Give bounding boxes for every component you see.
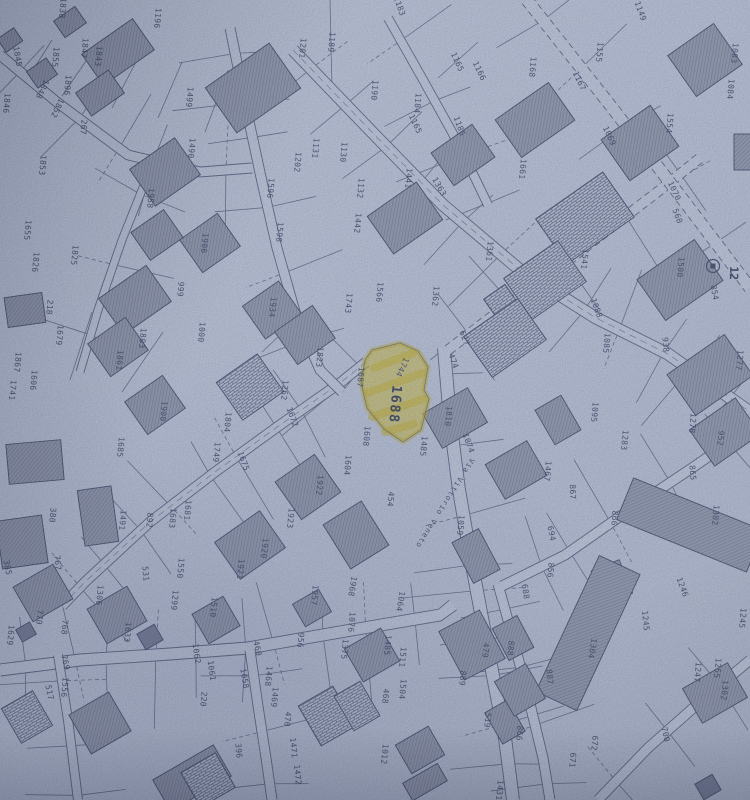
cadastral-map-photo: 1838119611831189120111901184116511651166… xyxy=(0,0,750,800)
map-canvas: 1838119611831189120111901184116511651166… xyxy=(0,0,750,800)
photo-grain xyxy=(0,0,750,800)
